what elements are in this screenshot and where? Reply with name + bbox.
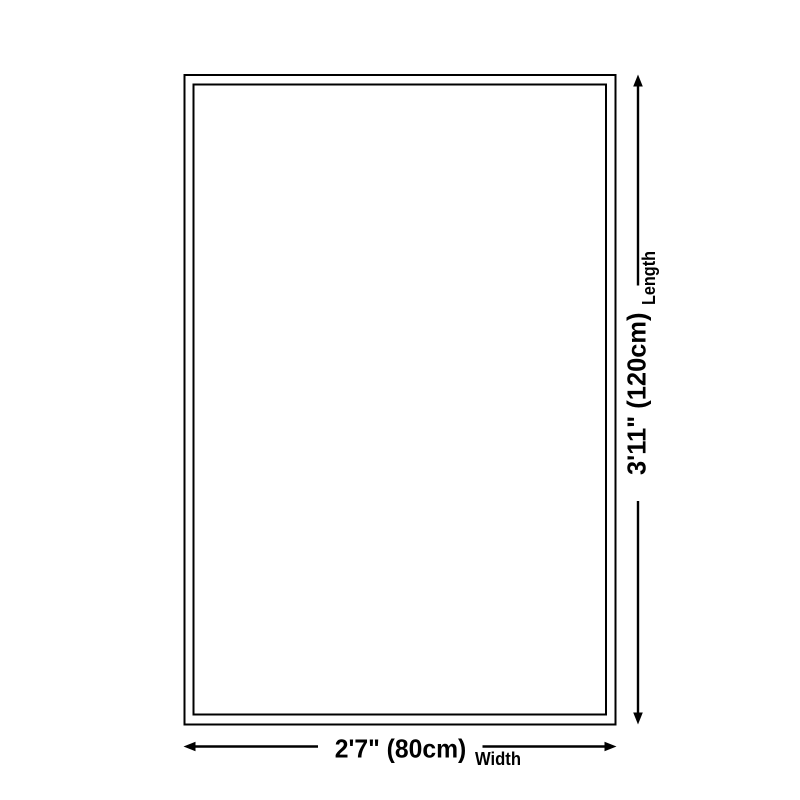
svg-text:Length: Length: [639, 251, 659, 305]
svg-text:2'7" (80cm): 2'7" (80cm): [335, 734, 467, 764]
svg-text:Width: Width: [475, 749, 521, 769]
svg-text:3'11" (120cm): 3'11" (120cm): [622, 313, 652, 476]
